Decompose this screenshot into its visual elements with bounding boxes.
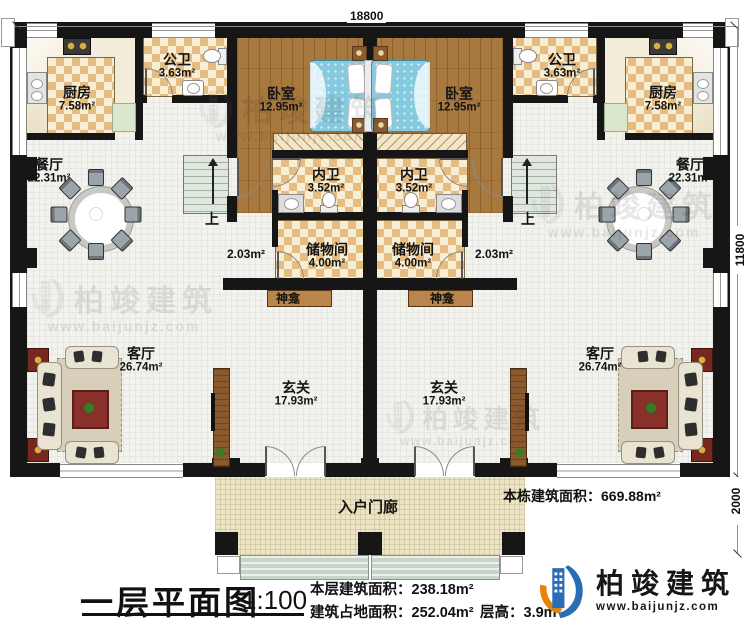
dimension-top-label: 18800 bbox=[347, 9, 386, 23]
label-living-right: 客厅26.74m² bbox=[579, 347, 622, 374]
stair-up-arrow bbox=[208, 158, 218, 166]
footprint-area-text: 建筑占地面积：252.04m² bbox=[310, 601, 474, 622]
dimension-right-upper-label: 11800 bbox=[733, 226, 747, 274]
label-inner-bath-left: 内卫3.52m² bbox=[308, 168, 344, 195]
dining-chair bbox=[125, 207, 142, 223]
staircase bbox=[511, 155, 557, 214]
stove bbox=[63, 38, 91, 55]
kitchen-sink bbox=[693, 72, 713, 104]
sofa bbox=[621, 346, 675, 369]
label-stairs-up-right: 上 bbox=[521, 209, 535, 229]
fridge bbox=[604, 103, 628, 132]
label-foyer-left: 玄关17.93m² bbox=[275, 381, 318, 408]
wall-bottom bbox=[680, 463, 730, 477]
label-foyer-right: 玄关17.93m² bbox=[423, 381, 466, 408]
wall-bath-south bbox=[593, 95, 597, 103]
bath-sink bbox=[436, 194, 462, 213]
plant bbox=[216, 448, 225, 457]
column-base bbox=[500, 556, 523, 574]
dining-chair bbox=[599, 207, 616, 223]
dining-chair bbox=[51, 207, 68, 223]
dining-chair bbox=[636, 169, 652, 186]
toilet bbox=[513, 48, 537, 63]
brand-name: 柏竣建筑 bbox=[596, 570, 736, 598]
wall-bath-south bbox=[143, 95, 147, 103]
label-shrine-left: 神龛 bbox=[276, 290, 300, 307]
label-kitchen-left: 厨房7.58m² bbox=[59, 86, 95, 113]
window bbox=[12, 273, 27, 307]
window bbox=[713, 48, 728, 155]
plan-scale: 1:100 bbox=[242, 585, 307, 616]
nightstand bbox=[373, 46, 388, 61]
floor-area-text: 本层建筑面积：238.18m² bbox=[310, 578, 474, 599]
building-total-area: 本栋建筑面积：669.88m² bbox=[503, 486, 661, 506]
brand-logo-icon bbox=[538, 562, 588, 620]
label-kitchen-right: 厨房7.58m² bbox=[645, 86, 681, 113]
dining-chair bbox=[88, 169, 104, 186]
bath-sink bbox=[536, 80, 558, 96]
fridge bbox=[112, 103, 136, 132]
floor-plan-page: 18800 11800 2000 柏竣建筑 www.baijunjz.com 柏… bbox=[0, 0, 750, 629]
nightstand bbox=[373, 118, 388, 133]
wall-innerbath-south bbox=[272, 212, 368, 220]
wall-storage-west bbox=[462, 220, 468, 247]
plant bbox=[515, 448, 524, 457]
label-bedroom-right: 卧室12.95m² bbox=[438, 87, 481, 114]
window bbox=[12, 48, 27, 155]
window bbox=[557, 464, 680, 478]
label-public-bath-left: 公卫3.63m² bbox=[159, 53, 195, 80]
brand-logo: 柏竣建筑 www.baijunjz.com bbox=[538, 562, 736, 620]
sofa bbox=[65, 441, 119, 464]
kitchen-sink bbox=[27, 72, 47, 104]
coffee-table bbox=[72, 390, 109, 429]
wall-innerbath-south bbox=[372, 212, 468, 220]
bath-sink bbox=[278, 194, 304, 213]
toilet bbox=[404, 192, 420, 213]
label-storage-left: 储物间4.00m² bbox=[306, 243, 348, 270]
porch-column bbox=[215, 532, 238, 555]
label-porch: 入户门廊 bbox=[338, 500, 398, 516]
label-public-bath-right: 公卫3.63m² bbox=[544, 53, 580, 80]
dimension-line-top bbox=[15, 26, 735, 27]
stove bbox=[649, 38, 677, 55]
wall-pier bbox=[27, 248, 37, 268]
porch-column bbox=[370, 532, 382, 555]
title-underline bbox=[82, 613, 304, 616]
wall-storage-south bbox=[370, 278, 517, 290]
wall-storage-south bbox=[223, 278, 370, 290]
wall-bedroom-west bbox=[503, 22, 513, 158]
bath-sink bbox=[182, 80, 204, 96]
dining-chair bbox=[88, 243, 104, 260]
wall-pier bbox=[703, 248, 713, 268]
label-landing-left: 2.03m² bbox=[227, 247, 265, 261]
tv bbox=[525, 393, 529, 431]
label-dining-right: 餐厅22.31m² bbox=[669, 158, 712, 185]
wall-kitchen-south bbox=[25, 133, 115, 140]
tv bbox=[211, 393, 215, 431]
porch-column bbox=[502, 532, 525, 555]
toilet bbox=[203, 48, 227, 63]
label-inner-bath-right: 内卫3.52m² bbox=[396, 168, 432, 195]
wall-bedroom-west bbox=[227, 196, 237, 222]
label-bedroom-left: 卧室12.95m² bbox=[260, 87, 303, 114]
label-shrine-right: 神龛 bbox=[430, 290, 454, 307]
column-base bbox=[217, 556, 240, 574]
sofa-main bbox=[37, 362, 62, 450]
label-storage-right: 储物间4.00m² bbox=[392, 243, 434, 270]
wall-innerbath-north bbox=[372, 150, 468, 158]
window bbox=[713, 273, 728, 307]
label-stairs-up-left: 上 bbox=[205, 209, 219, 229]
label-dining-left: 餐厅22.31m² bbox=[28, 158, 71, 185]
pillow bbox=[374, 63, 393, 94]
window bbox=[60, 464, 183, 478]
label-living-left: 客厅26.74m² bbox=[120, 347, 163, 374]
staircase bbox=[183, 155, 229, 214]
wall-kitchen-east bbox=[135, 38, 143, 140]
coffee-table bbox=[631, 390, 668, 429]
wall-innerbath-north bbox=[272, 150, 368, 158]
sofa bbox=[65, 346, 119, 369]
wall-storage-west bbox=[272, 220, 278, 247]
sofa-main bbox=[678, 362, 703, 450]
wall-bedroom-west bbox=[227, 22, 237, 158]
toilet bbox=[320, 192, 336, 213]
wall-bedroom-west bbox=[503, 196, 513, 222]
wall-bottom bbox=[370, 463, 415, 477]
sofa bbox=[621, 441, 675, 464]
dimension-right-lower-label: 2000 bbox=[729, 477, 743, 525]
wall-kitchen-south bbox=[625, 133, 715, 140]
entry-steps bbox=[371, 555, 500, 580]
label-landing-right: 2.03m² bbox=[475, 247, 513, 261]
wall-bottom bbox=[10, 463, 60, 477]
dining-chair bbox=[673, 207, 690, 223]
dining-chair bbox=[636, 243, 652, 260]
plan-title: 一层平面图 bbox=[80, 576, 260, 624]
stair-up-arrow bbox=[522, 158, 532, 166]
brand-url: www.baijunjz.com bbox=[596, 601, 736, 613]
wall-innerbath-west bbox=[462, 190, 468, 212]
